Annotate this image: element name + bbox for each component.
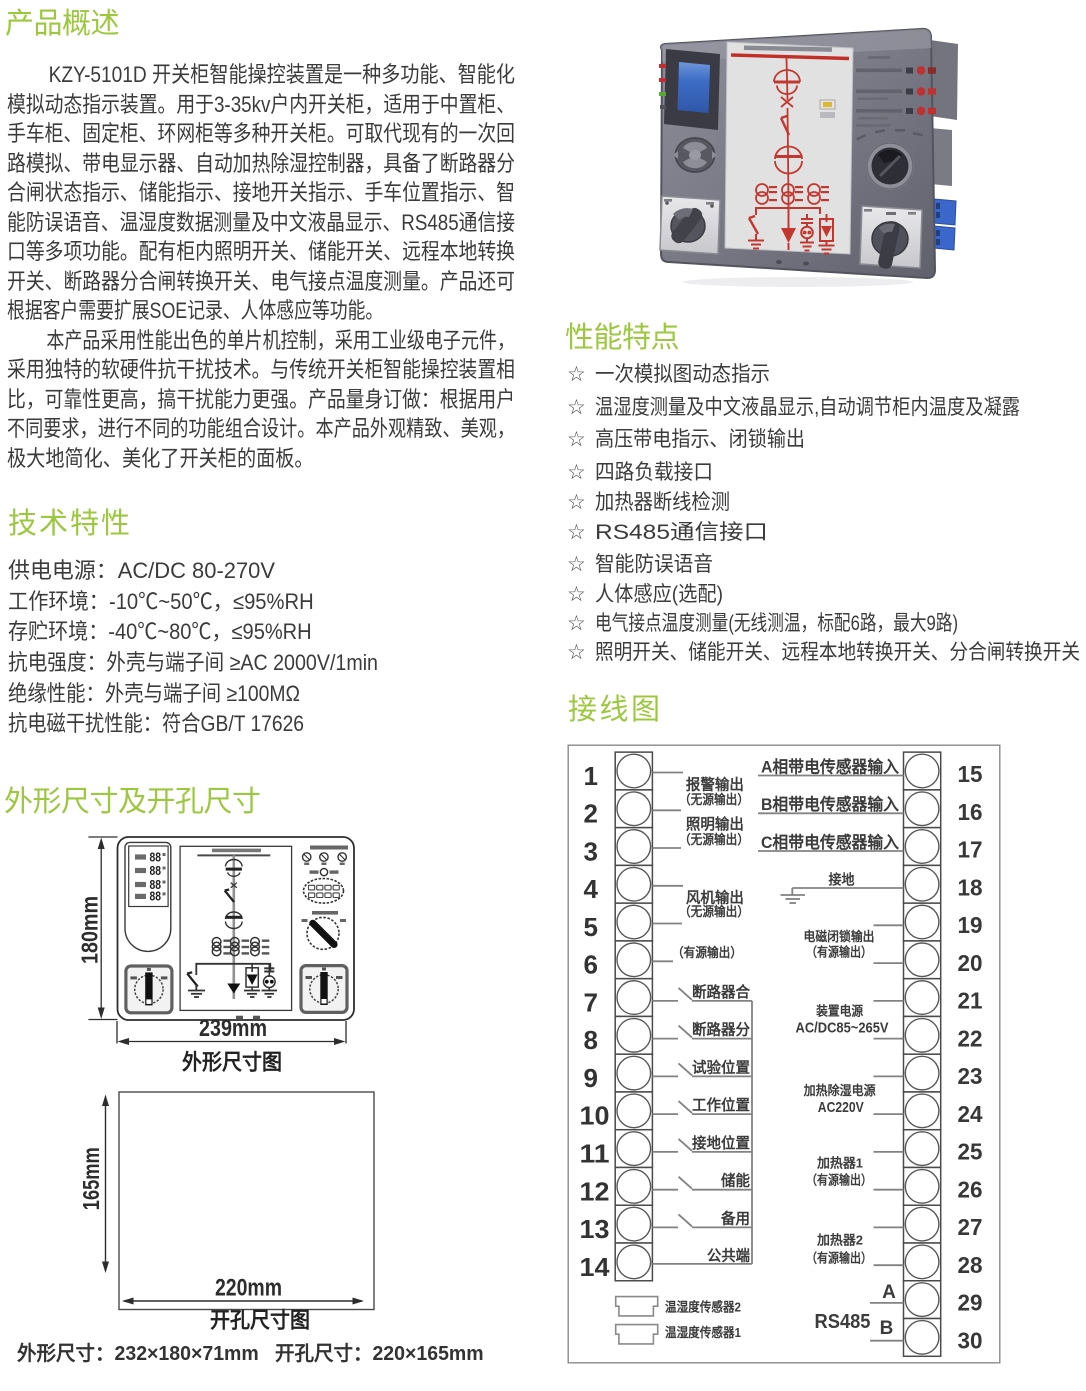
svg-text:8: 8 (584, 1025, 598, 1055)
svg-text:（无源输出）: （无源输出） (679, 904, 749, 919)
svg-text:A相带电传感器输入: A相带电传感器输入 (761, 756, 899, 776)
svg-text:A: A (882, 1282, 896, 1303)
svg-text:（有源输出）: （有源输出） (806, 1251, 872, 1266)
svg-text:10: 10 (580, 1101, 610, 1131)
svg-text:AC/DC85~265V: AC/DC85~265V (796, 1020, 889, 1037)
svg-text:储能: 储能 (721, 1172, 750, 1190)
svg-text:5: 5 (584, 912, 598, 942)
svg-text:温湿度传感器2: 温湿度传感器2 (665, 1299, 741, 1314)
svg-text:180mm: 180mm (77, 896, 103, 964)
svg-text:加热除湿电源: 加热除湿电源 (803, 1083, 876, 1098)
svg-text:（有源输出）: （有源输出） (672, 945, 742, 960)
svg-text:23: 23 (958, 1063, 983, 1089)
svg-text:14: 14 (580, 1252, 611, 1282)
svg-text:1: 1 (584, 761, 598, 791)
svg-text:88: 88 (150, 890, 162, 904)
svg-text:17: 17 (958, 837, 983, 863)
svg-text:（无源输出）: （无源输出） (679, 832, 749, 847)
svg-text:27: 27 (958, 1214, 983, 1240)
svg-text:11: 11 (580, 1139, 610, 1169)
svg-text:电磁闭锁输出: 电磁闭锁输出 (804, 929, 875, 944)
svg-text:B相带电传感器输入: B相带电传感器输入 (761, 794, 899, 814)
svg-text:（有源输出）: （有源输出） (806, 944, 872, 959)
svg-text:（无源输出）: （无源输出） (679, 792, 749, 807)
svg-text:19: 19 (958, 912, 983, 938)
svg-text:26: 26 (958, 1176, 983, 1202)
svg-text:12: 12 (580, 1176, 610, 1206)
svg-text:C相带电传感器输入: C相带电传感器输入 (761, 832, 899, 852)
svg-text:3: 3 (584, 836, 598, 866)
svg-text:13: 13 (580, 1214, 610, 1244)
svg-text:165mm: 165mm (78, 1147, 104, 1210)
svg-text:20: 20 (958, 950, 983, 976)
svg-text:16: 16 (958, 799, 983, 825)
svg-text:88: 88 (150, 864, 162, 878)
svg-text:AC220V: AC220V (818, 1099, 864, 1116)
svg-text:（有源输出）: （有源输出） (806, 1173, 872, 1188)
svg-text:22: 22 (958, 1025, 983, 1051)
svg-text:220mm: 220mm (215, 1275, 282, 1302)
svg-text:照明输出: 照明输出 (686, 815, 744, 833)
svg-text:2: 2 (584, 799, 598, 829)
svg-text:工作位置: 工作位置 (692, 1096, 750, 1114)
svg-text:加热器1: 加热器1 (816, 1156, 863, 1171)
svg-text:24: 24 (958, 1101, 983, 1127)
svg-text:报警输出: 报警输出 (686, 776, 744, 794)
svg-text:4: 4 (584, 874, 599, 904)
svg-text:试验位置: 试验位置 (692, 1058, 750, 1076)
svg-text:温湿度传感器1: 温湿度传感器1 (665, 1325, 741, 1340)
svg-text:B: B (880, 1318, 894, 1339)
svg-text:备用: 备用 (720, 1209, 750, 1227)
svg-text:断路器分: 断路器分 (692, 1021, 750, 1039)
svg-text:28: 28 (958, 1252, 983, 1278)
svg-text:接地: 接地 (829, 872, 855, 888)
svg-text:18: 18 (958, 874, 983, 900)
svg-text:25: 25 (958, 1139, 983, 1165)
svg-text:9: 9 (584, 1063, 598, 1093)
svg-text:RS485: RS485 (815, 1311, 871, 1333)
svg-text:开孔尺寸图: 开孔尺寸图 (210, 1308, 310, 1332)
svg-text:公共端: 公共端 (707, 1246, 750, 1264)
svg-text:15: 15 (958, 761, 983, 787)
svg-text:7: 7 (584, 988, 598, 1018)
svg-text:加热器2: 加热器2 (816, 1233, 863, 1248)
svg-text:断路器合: 断路器合 (692, 983, 751, 1001)
svg-text:88: 88 (150, 850, 162, 864)
svg-text:30: 30 (958, 1327, 983, 1353)
svg-text:29: 29 (958, 1290, 983, 1316)
svg-text:6: 6 (584, 950, 598, 980)
svg-text:装置电源: 装置电源 (815, 1004, 863, 1019)
svg-text:21: 21 (958, 988, 983, 1014)
svg-text:外形尺寸图: 外形尺寸图 (182, 1050, 282, 1075)
svg-text:接地位置: 接地位置 (692, 1134, 750, 1152)
